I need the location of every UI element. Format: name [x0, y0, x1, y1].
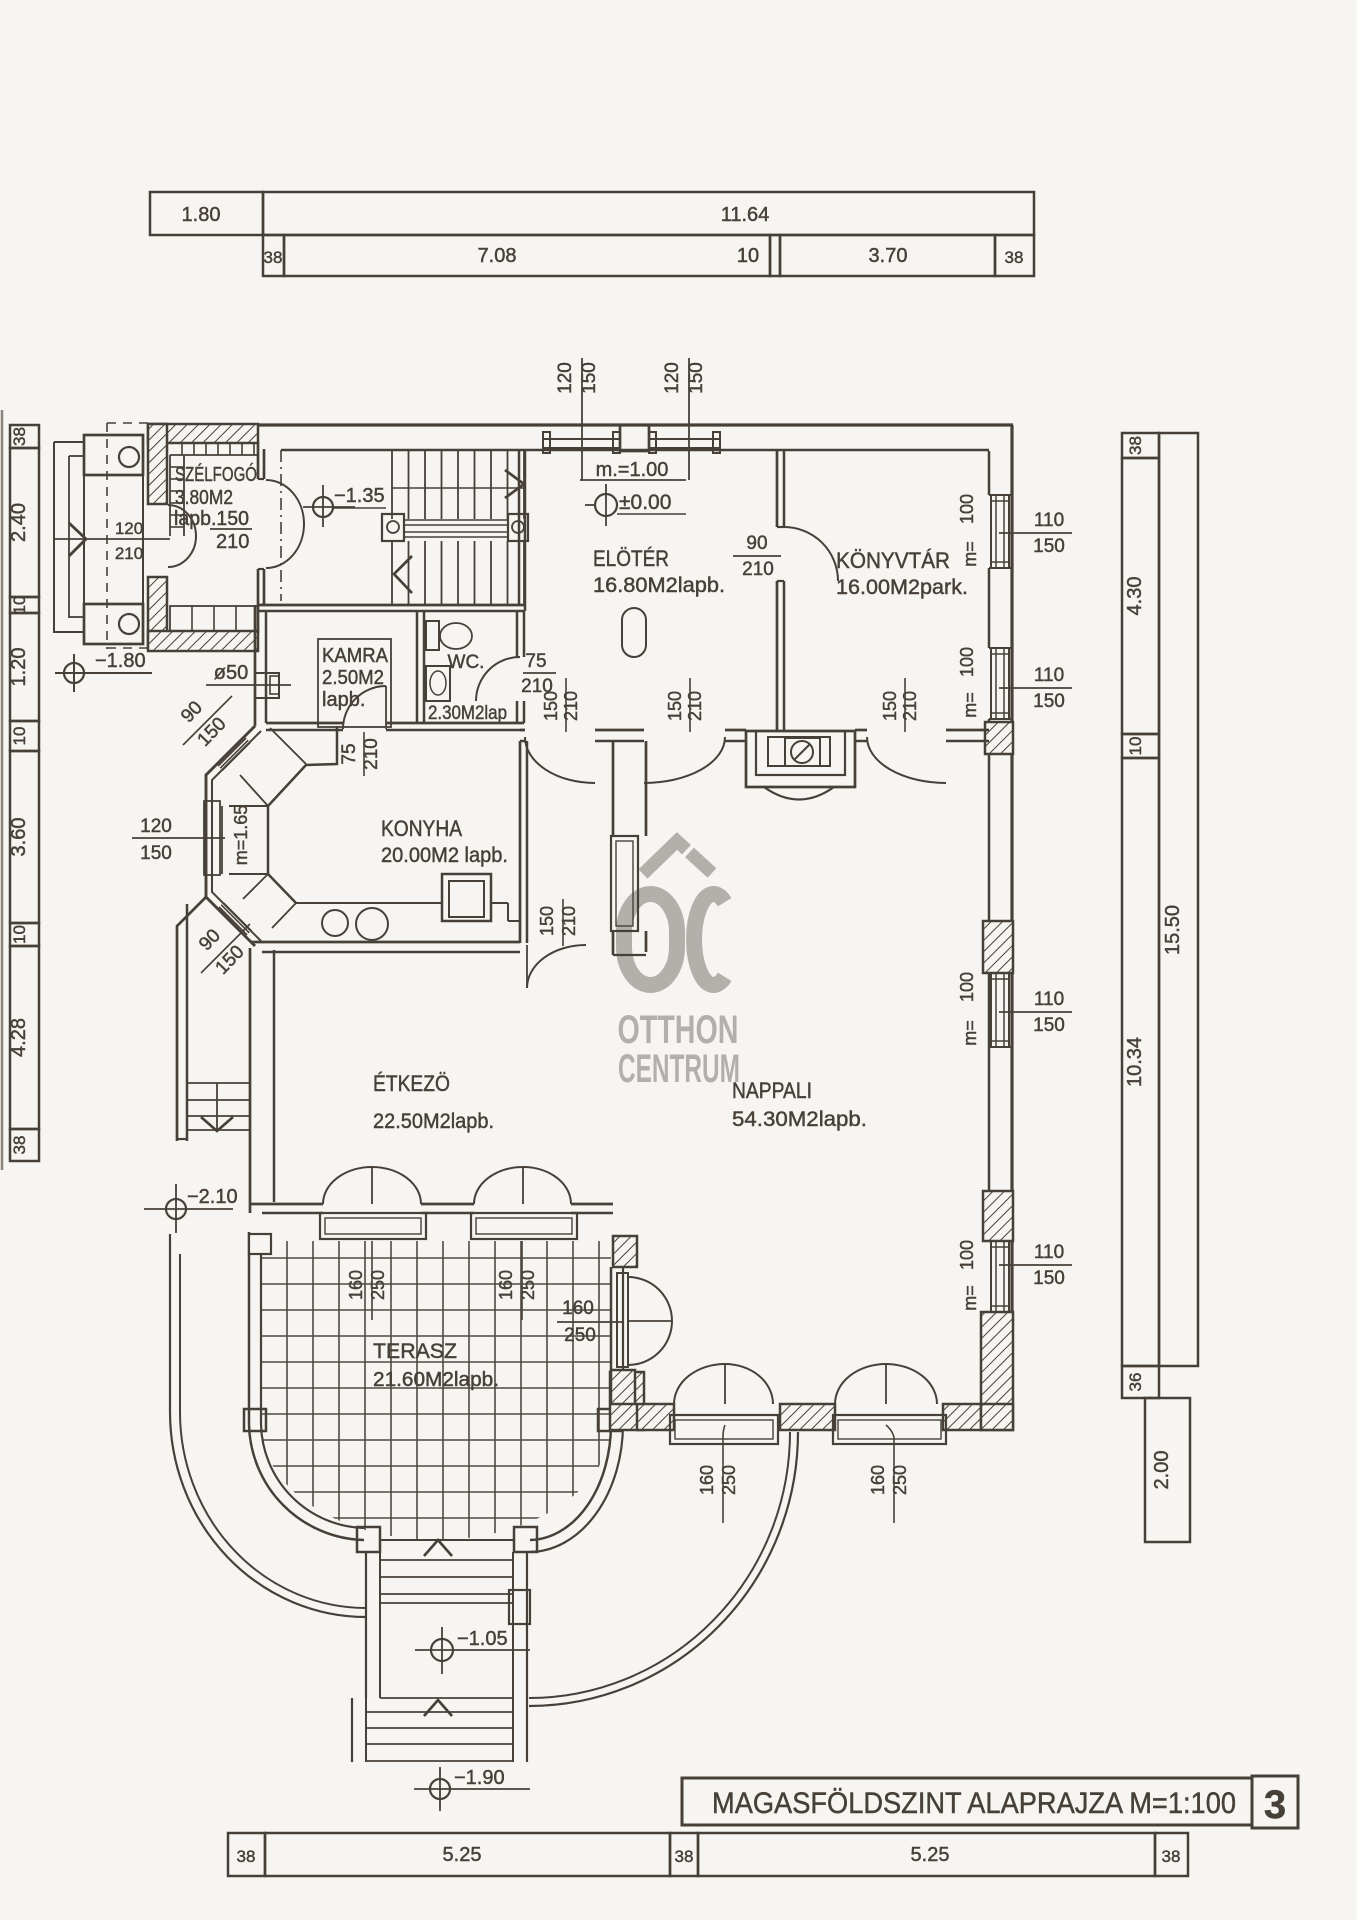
svg-text:KAMRA: KAMRA: [322, 645, 389, 667]
svg-text:250: 250: [368, 1270, 388, 1300]
svg-text:210: 210: [115, 544, 143, 563]
svg-text:36: 36: [1126, 1373, 1145, 1392]
svg-text:−1.05: −1.05: [457, 1628, 508, 1650]
svg-text:16.80M2lapb.: 16.80M2lapb.: [593, 574, 725, 597]
svg-text:150: 150: [665, 691, 685, 721]
svg-text:38: 38: [10, 427, 29, 446]
svg-text:150: 150: [686, 362, 707, 394]
svg-text:15.50: 15.50: [1162, 905, 1184, 955]
svg-text:150: 150: [1033, 1268, 1065, 1289]
svg-text:m.=1.00: m.=1.00: [596, 459, 669, 481]
svg-text:150: 150: [880, 691, 900, 721]
svg-text:1.20: 1.20: [8, 648, 30, 687]
svg-text:150: 150: [1033, 691, 1065, 712]
svg-text:10: 10: [10, 727, 29, 746]
svg-text:m=: m=: [960, 1285, 980, 1311]
svg-text:lapb.150: lapb.150: [174, 508, 249, 530]
svg-text:150: 150: [140, 843, 172, 864]
svg-text:90: 90: [746, 533, 767, 554]
svg-text:TERASZ: TERASZ: [373, 1340, 457, 1363]
svg-text:m=: m=: [960, 1020, 980, 1046]
svg-text:210: 210: [216, 531, 249, 553]
svg-text:OTTHON: OTTHON: [618, 1008, 739, 1052]
svg-text:210: 210: [900, 691, 920, 721]
svg-text:150: 150: [1033, 536, 1065, 557]
svg-text:210: 210: [561, 691, 581, 721]
svg-text:150: 150: [579, 362, 600, 394]
svg-text:10: 10: [10, 596, 29, 615]
svg-text:38: 38: [675, 1847, 694, 1866]
svg-text:3.70: 3.70: [869, 245, 908, 267]
svg-text:1.80: 1.80: [182, 204, 221, 226]
svg-text:210: 210: [559, 906, 579, 936]
svg-text:250: 250: [719, 1465, 739, 1495]
svg-text:120: 120: [115, 519, 143, 538]
svg-text:150: 150: [541, 691, 561, 721]
svg-text:160: 160: [346, 1270, 366, 1300]
svg-text:WC.: WC.: [448, 652, 485, 673]
svg-text:210: 210: [685, 691, 705, 721]
svg-text:150: 150: [1033, 1015, 1065, 1036]
svg-text:3.80M2: 3.80M2: [175, 487, 233, 509]
svg-text:100: 100: [957, 494, 977, 524]
svg-text:110: 110: [1034, 510, 1064, 531]
svg-text:lapb.: lapb.: [322, 689, 365, 711]
svg-text:3.60: 3.60: [8, 818, 30, 857]
svg-text:21.60M2lapb.: 21.60M2lapb.: [373, 1369, 499, 1391]
svg-text:250: 250: [890, 1465, 910, 1495]
svg-text:38: 38: [10, 1136, 29, 1155]
svg-text:38: 38: [1005, 248, 1024, 267]
svg-text:120: 120: [662, 362, 683, 394]
svg-text:250: 250: [564, 1325, 596, 1346]
svg-text:KÖNYVTÁR: KÖNYVTÁR: [836, 548, 950, 573]
svg-text:3: 3: [1264, 1783, 1286, 1827]
svg-text:38: 38: [1126, 436, 1145, 455]
svg-text:10.34: 10.34: [1124, 1037, 1146, 1087]
svg-text:120: 120: [555, 362, 576, 394]
svg-text:m=: m=: [960, 541, 980, 567]
svg-text:CENTRUM: CENTRUM: [618, 1047, 740, 1091]
svg-text:100: 100: [957, 972, 977, 1002]
svg-text:54.30M2lapb.: 54.30M2lapb.: [732, 1108, 867, 1131]
svg-text:5.25: 5.25: [443, 1844, 482, 1866]
svg-text:10: 10: [1126, 737, 1145, 756]
svg-text:10: 10: [737, 245, 759, 267]
svg-text:38: 38: [237, 1847, 256, 1866]
svg-text:110: 110: [1034, 1242, 1064, 1263]
svg-text:210: 210: [742, 559, 774, 580]
svg-text:−2.10: −2.10: [187, 1186, 238, 1208]
svg-text:5.25: 5.25: [911, 1844, 950, 1866]
svg-text:110: 110: [1034, 989, 1064, 1010]
svg-text:120: 120: [140, 816, 172, 837]
svg-text:160: 160: [562, 1298, 594, 1319]
svg-text:160: 160: [496, 1270, 516, 1300]
svg-text:2.00: 2.00: [1151, 1451, 1173, 1490]
svg-text:10: 10: [10, 925, 29, 944]
svg-text:160: 160: [868, 1465, 888, 1495]
svg-text:100: 100: [957, 647, 977, 677]
svg-text:16.00M2park.: 16.00M2park.: [836, 576, 968, 599]
svg-text:m=: m=: [960, 692, 980, 718]
svg-text:4.30: 4.30: [1124, 577, 1146, 616]
svg-text:7.08: 7.08: [478, 245, 517, 267]
svg-text:SZÉLFOGÓ: SZÉLFOGÓ: [175, 463, 257, 486]
svg-text:MAGASFÖLDSZINT ALAPRAJZA M=1:: MAGASFÖLDSZINT ALAPRAJZA M=1:100: [712, 1787, 1236, 1820]
svg-text:110: 110: [1034, 665, 1064, 686]
svg-text:KONYHA: KONYHA: [381, 816, 462, 841]
svg-text:−1.90: −1.90: [454, 1767, 505, 1789]
svg-text:ÉTKEZÖ: ÉTKEZÖ: [373, 1071, 450, 1096]
svg-text:150: 150: [537, 906, 557, 936]
svg-text:4.28: 4.28: [8, 1018, 30, 1057]
svg-text:160: 160: [697, 1465, 717, 1495]
svg-text:−1.80: −1.80: [95, 650, 146, 672]
svg-text:m=1.65: m=1.65: [231, 805, 251, 866]
svg-text:11.64: 11.64: [721, 204, 770, 226]
svg-text:±0.00: ±0.00: [619, 491, 671, 514]
svg-text:20.00M2 lapb.: 20.00M2 lapb.: [381, 844, 508, 867]
svg-text:75: 75: [339, 743, 360, 764]
svg-text:ø50: ø50: [214, 662, 248, 684]
svg-text:100: 100: [957, 1240, 977, 1270]
svg-text:−1.35: −1.35: [334, 485, 385, 507]
svg-text:2.40: 2.40: [8, 503, 30, 542]
svg-text:22.50M2lapb.: 22.50M2lapb.: [373, 1110, 494, 1133]
svg-text:2.50M2: 2.50M2: [322, 667, 384, 689]
svg-text:38: 38: [1162, 1847, 1181, 1866]
svg-text:75: 75: [525, 651, 546, 672]
svg-text:2.30M2lap: 2.30M2lap: [428, 703, 507, 724]
svg-text:38: 38: [264, 248, 283, 267]
svg-text:NAPPALI: NAPPALI: [732, 1078, 812, 1103]
svg-text:ELÖTÉR: ELÖTÉR: [593, 546, 669, 571]
